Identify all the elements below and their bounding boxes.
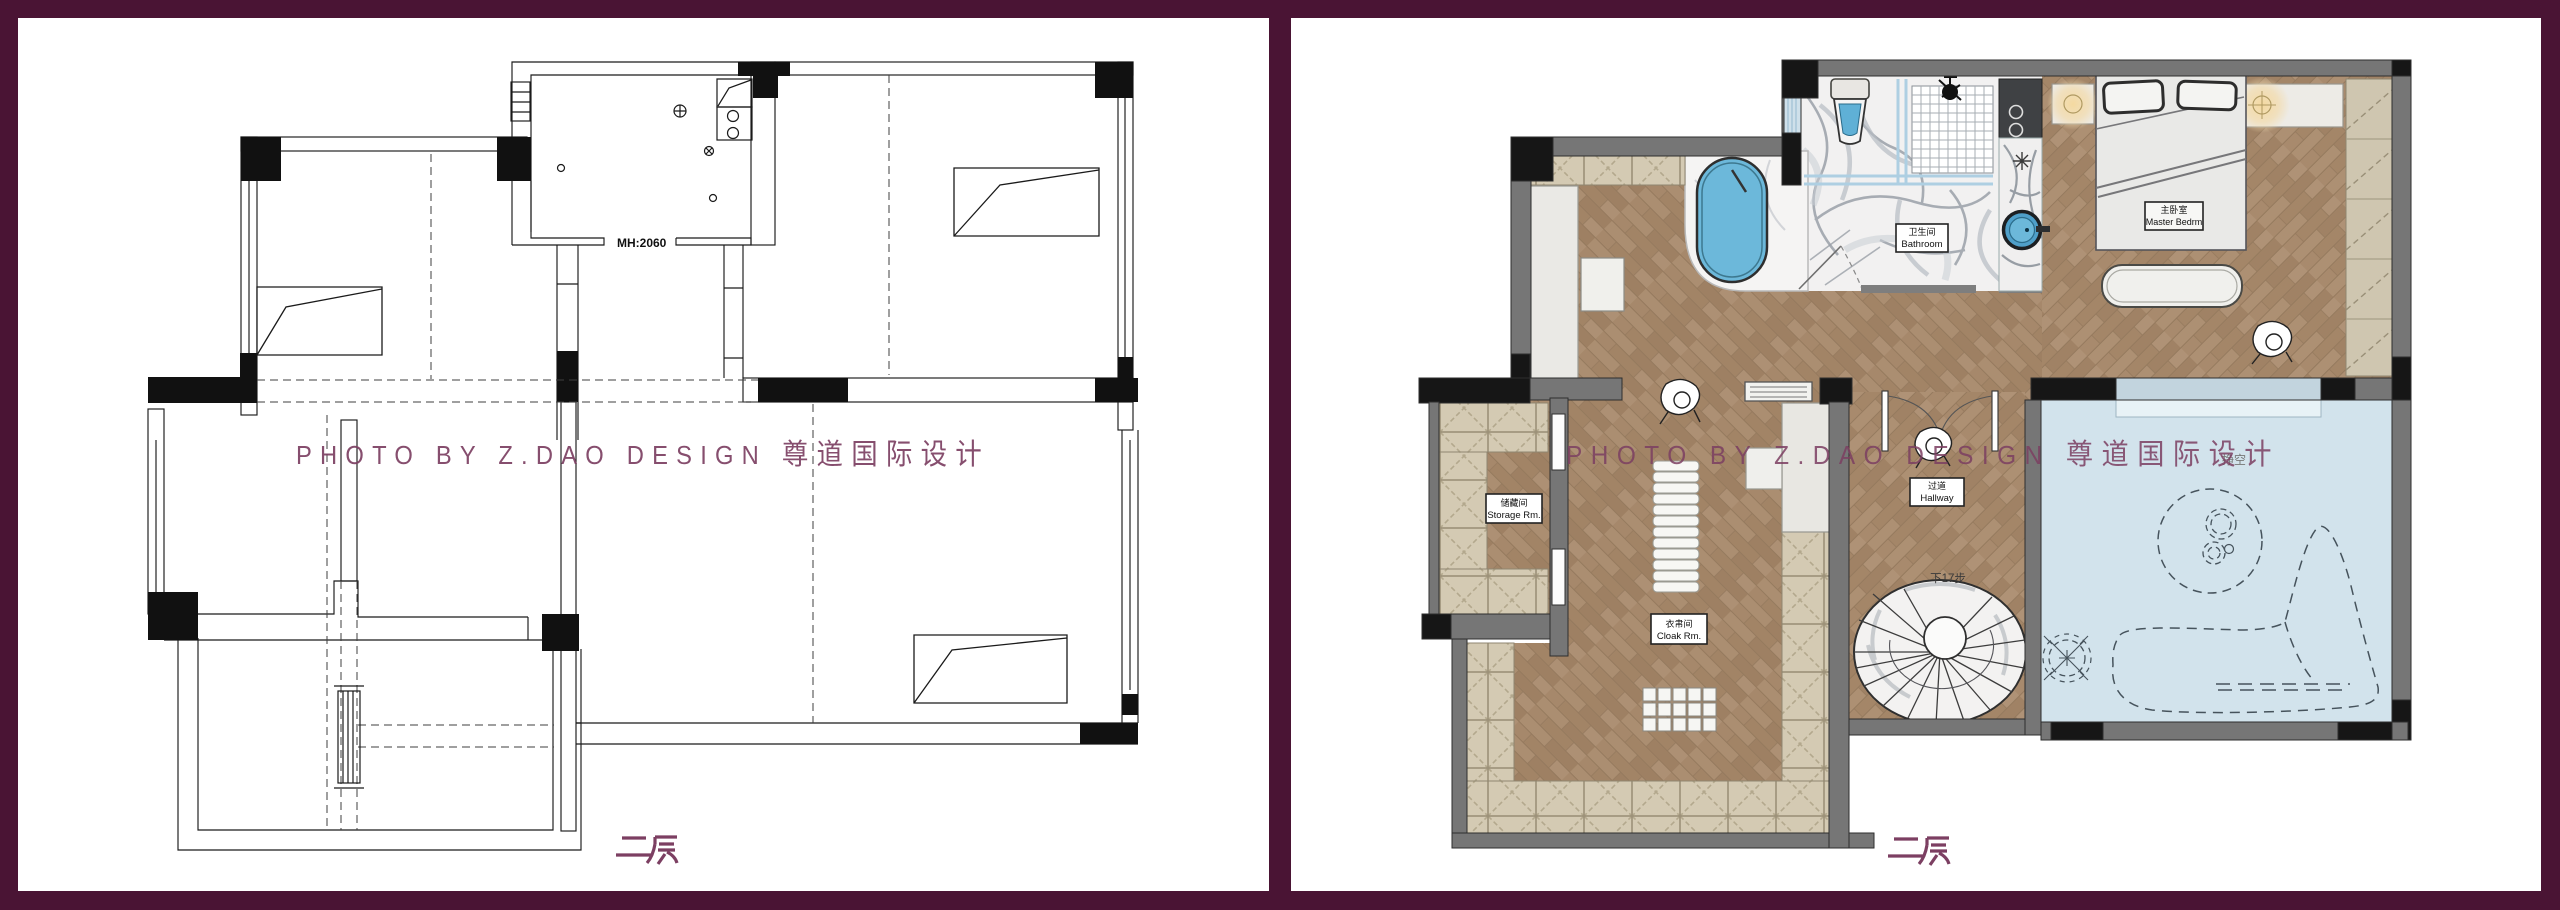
svg-text:Master Bedrm: Master Bedrm [2146,217,2203,227]
svg-text:Storage Rm.: Storage Rm. [1487,510,1540,521]
svg-text:衣帇间: 衣帇间 [1665,618,1692,629]
svg-text:过道: 过道 [1928,480,1946,491]
svg-text:Bathroom: Bathroom [1901,239,1942,250]
svg-text:PHOTO BY Z.DAO DESIGN 尊道国际设计: PHOTO BY Z.DAO DESIGN 尊道国际设计 [296,438,990,471]
svg-text:下17步: 下17步 [1930,572,1966,585]
svg-text:卫生间: 卫生间 [1908,226,1935,237]
svg-text:PHOTO BY Z.DAO DESIGN 尊道国际设计: PHOTO BY Z.DAO DESIGN 尊道国际设计 [1566,438,2280,471]
svg-text:主卧室: 主卧室 [2160,204,2187,215]
svg-text:Cloak Rm.: Cloak Rm. [1657,631,1701,642]
svg-text:Hallway: Hallway [1920,493,1954,504]
svg-text:储藏间: 储藏间 [1500,497,1527,508]
svg-text:MH:2060: MH:2060 [617,236,667,250]
